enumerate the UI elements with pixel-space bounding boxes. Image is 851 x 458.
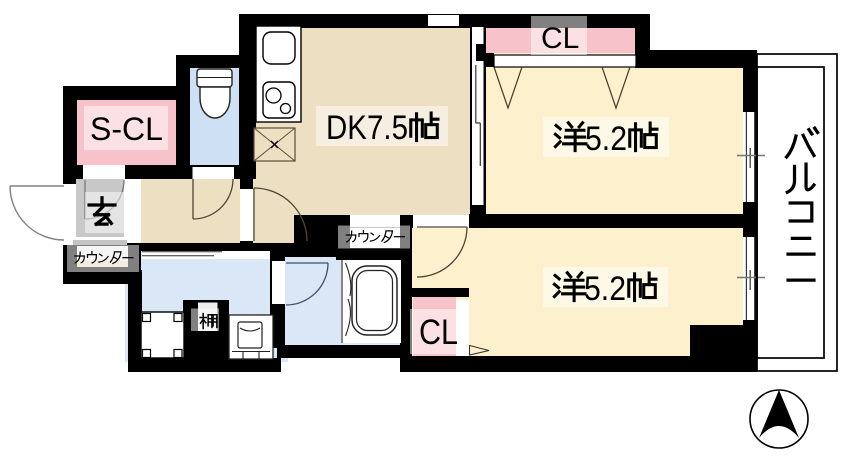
svg-text:5.2: 5.2 bbox=[584, 270, 626, 308]
svg-text:5.2: 5.2 bbox=[585, 120, 627, 158]
svg-text:DK7.5: DK7.5 bbox=[326, 109, 408, 147]
svg-text:S-CL: S-CL bbox=[90, 111, 163, 147]
svg-text:CL: CL bbox=[541, 22, 579, 55]
svg-text:CL: CL bbox=[419, 313, 458, 352]
